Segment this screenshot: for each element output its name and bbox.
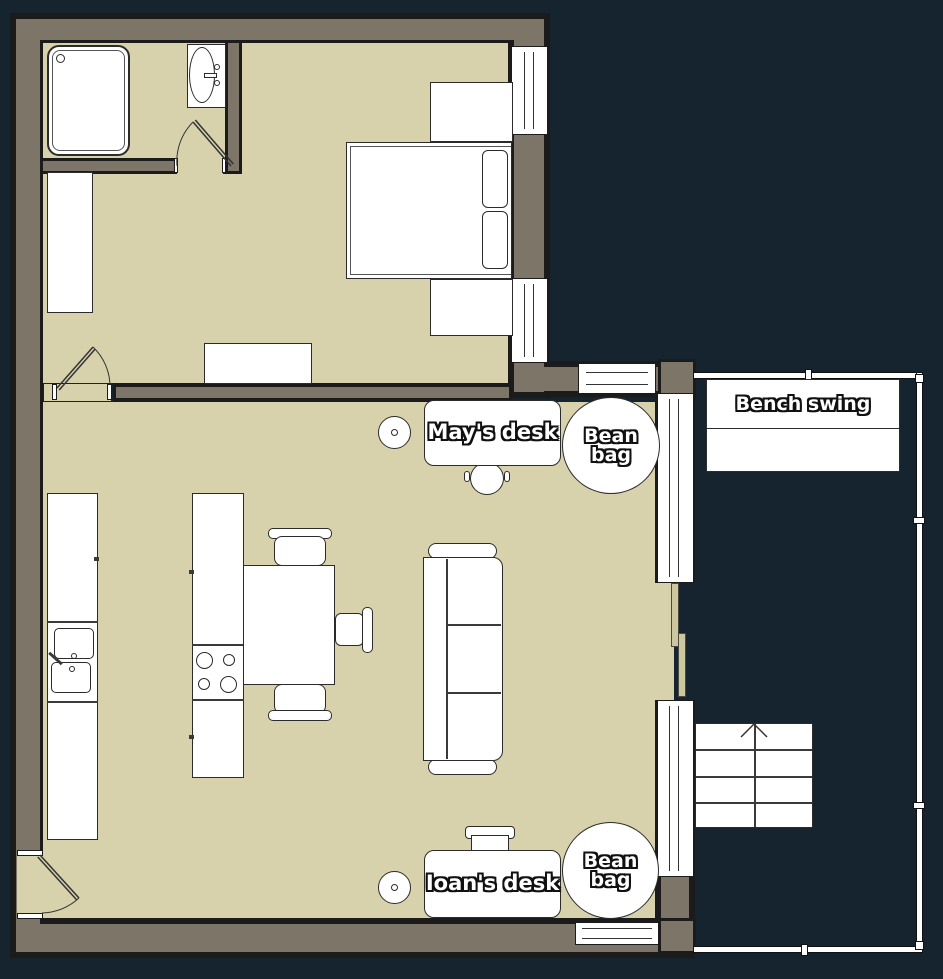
- ioans-desk-label: Ioan's desk: [426, 874, 559, 894]
- window-glass: [524, 284, 534, 357]
- dresser-wall: [204, 343, 312, 384]
- dining-chair-seat: [335, 613, 364, 646]
- sink-knob: [69, 666, 75, 672]
- sofa-armrest: [428, 759, 497, 775]
- stove-burner: [223, 654, 235, 666]
- deck-railing-bottom: [693, 946, 923, 953]
- desk-chair: [470, 462, 504, 495]
- bean-bag-bottom: Bean bag: [562, 822, 659, 919]
- bathtub-drain: [56, 54, 65, 63]
- dining-table: [243, 565, 335, 685]
- pillow: [482, 150, 508, 208]
- sofa-body: [423, 557, 503, 761]
- window-glass: [524, 52, 534, 129]
- sofa-back-line: [446, 559, 448, 759]
- mays-desk: May's desk: [424, 400, 561, 466]
- window-glass: [586, 372, 648, 385]
- bean-bag-label: Bean bag: [580, 852, 642, 888]
- wall-divider-fill: [116, 387, 509, 398]
- deck-railing-right: [916, 372, 923, 953]
- window-glass: [669, 399, 679, 577]
- dresser-bed-foot: [430, 279, 513, 336]
- bean-bag-top: Bean bag: [562, 397, 660, 494]
- counter-divider-line: [47, 701, 98, 703]
- wardrobe: [47, 172, 93, 313]
- stove-burner: [220, 676, 237, 693]
- sink-faucet-knob: [214, 80, 220, 86]
- kitchen-island: [192, 493, 244, 778]
- pillow: [482, 211, 508, 269]
- window-glass: [669, 706, 679, 871]
- sink-faucet-spout: [204, 73, 217, 78]
- bench-swing-back: Bench swing: [707, 380, 899, 429]
- nightstand: [430, 82, 513, 142]
- bedroom-door: [53, 343, 115, 392]
- cabinet-handle: [189, 735, 194, 739]
- sofa-cushion-line: [447, 624, 501, 626]
- mays-desk-label: May's desk: [427, 423, 557, 443]
- bean-bag-label: Bean bag: [580, 427, 642, 463]
- stool-center: [391, 429, 398, 436]
- front-door: [34, 851, 86, 919]
- floor-plan: Bench swing: [0, 0, 943, 979]
- island-divider-line: [192, 699, 244, 701]
- bench-swing-label: Bench swing: [736, 395, 871, 413]
- ioans-desk: Ioan's desk: [424, 850, 561, 918]
- dining-chair-back: [268, 710, 332, 721]
- cabinet-handle: [189, 570, 194, 574]
- deck-post-bottom: [658, 918, 696, 954]
- sofa-cushion-line: [447, 692, 501, 694]
- railing-corner: [915, 941, 924, 950]
- stairs-up-arrow-icon: [695, 720, 813, 742]
- stove-burner: [196, 652, 213, 669]
- sliding-door-panel: [678, 633, 686, 697]
- sink-knob: [71, 653, 77, 659]
- wall-left-fill: [16, 19, 40, 952]
- bathroom-door: [175, 116, 237, 170]
- dining-chair-back: [362, 607, 373, 653]
- sink-faucet-knob: [214, 64, 220, 70]
- railing-corner: [915, 374, 924, 383]
- stool-center: [391, 884, 398, 891]
- window-glass: [582, 928, 652, 939]
- cabinet-handle: [94, 557, 99, 561]
- dining-chair-seat: [274, 536, 326, 566]
- railing-joint: [801, 944, 808, 956]
- stove-burner: [198, 678, 210, 690]
- bench-swing: Bench swing: [706, 379, 900, 472]
- counter-divider-line: [47, 621, 98, 623]
- wall-bathroom-bottom-fill: [43, 161, 174, 171]
- railing-joint: [913, 802, 925, 809]
- island-divider-line: [192, 644, 244, 646]
- bathtub-inner: [52, 50, 125, 151]
- desk-chair-arm: [504, 471, 510, 482]
- wall-top-fill: [16, 19, 544, 40]
- railing-joint: [913, 517, 925, 524]
- bench-swing-seat: [707, 429, 899, 471]
- living-room-floor: [43, 402, 655, 918]
